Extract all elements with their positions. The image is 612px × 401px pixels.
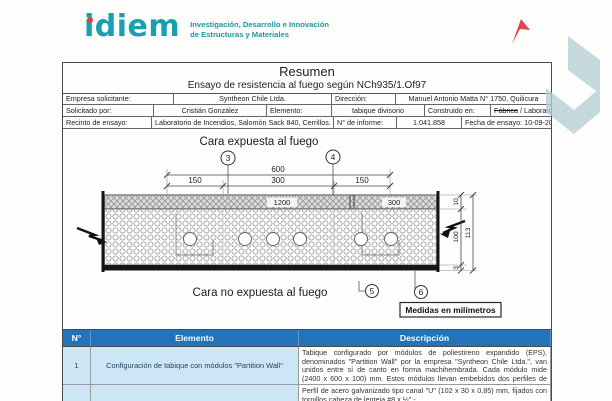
- value-elemento: tabique divisorio: [331, 105, 424, 116]
- idiem-logo: idiem Investigación, Desarrollo e Innova…: [84, 12, 329, 42]
- svg-text:4: 4: [331, 152, 336, 162]
- value-fecha-ensayo: Fecha de ensayo: 10-09-2015: [461, 117, 551, 128]
- callout-6: 6: [414, 271, 428, 299]
- watermark-arrow-icon: [540, 36, 604, 142]
- idiem-tagline-line1: Investigación, Desarrollo e Innovación: [190, 20, 329, 30]
- dim-3: 3: [453, 266, 460, 270]
- row2-element: Cierre perimetral (no mostrado): [91, 385, 299, 401]
- exposed-face-label: Cara expuesta al fuego: [200, 136, 319, 148]
- page-title: Resumen: [63, 64, 551, 79]
- units-note-text: Medidas en milímetros: [405, 305, 496, 315]
- panel-right-end-cap: [437, 191, 440, 272]
- row2-num: 2: [63, 385, 91, 401]
- label-construido-en: Construido en:: [424, 105, 490, 116]
- idiem-wordmark: idiem: [84, 12, 180, 42]
- idiem-tagline-line2: de Estructuras y Materiales: [190, 30, 329, 40]
- row2-description: Perfil de acero galvanizado tipo canal "…: [299, 385, 551, 401]
- label-num-informe: N° de informe:: [333, 117, 396, 128]
- info-row-3: Recinto de ensayo: Laboratorio de Incend…: [63, 117, 551, 129]
- label-elemento: Elemento:: [266, 105, 331, 116]
- svg-text:3: 3: [226, 153, 231, 163]
- info-row-2: Solicitado por: Cristián González Elemen…: [63, 105, 551, 117]
- svg-text:150: 150: [188, 176, 202, 185]
- info-table: Empresa solicitante: Syntheon Chile Ltda…: [63, 93, 551, 129]
- value-solicitado-por: Cristián González: [153, 105, 266, 116]
- eps-core-layer: [105, 209, 437, 265]
- svg-text:600: 600: [271, 165, 285, 174]
- title-block: Resumen Ensayo de resistencia al fuego s…: [63, 63, 551, 94]
- page-subtitle: Ensayo de resistencia al fuego según NCh…: [63, 80, 551, 91]
- top-mortar-layer: 1200 300: [105, 195, 437, 209]
- idiem-tagline: Investigación, Desarrollo e Innovación d…: [190, 20, 329, 39]
- bottom-coating-layer: [105, 265, 437, 271]
- row1-description: Tabique configurado por módulos de polie…: [299, 347, 551, 385]
- row1-element: Configuración de tabique con módulos "Pa…: [91, 347, 299, 385]
- unexposed-face-label: Cara no expuesta al fuego: [193, 287, 328, 299]
- value-recinto: Laboratorio de Incendios, Salomón Sack 8…: [151, 117, 333, 128]
- dim-113: 113: [465, 227, 472, 238]
- red-pointer-icon: [511, 17, 533, 47]
- label-recinto: Recinto de ensayo:: [63, 117, 151, 128]
- svg-text:300: 300: [271, 176, 285, 185]
- svg-text:6: 6: [419, 287, 424, 297]
- label-direccion: Dirección:: [331, 93, 395, 104]
- dim-100: 100: [453, 231, 460, 243]
- label-solicitado-por: Solicitado por:: [63, 105, 153, 116]
- scanned-report-page: idiem Investigación, Desarrollo e Innova…: [0, 0, 612, 401]
- logo-red-dot-accent: [87, 17, 93, 23]
- value-empresa: Syntheon Chile Ltda.: [173, 93, 331, 104]
- label-empresa: Empresa solicitante:: [63, 93, 173, 104]
- dim-10: 10: [453, 198, 460, 206]
- construido-fabrica-struck: Fábrica: [494, 106, 518, 115]
- panel-width-label: 1200: [274, 198, 291, 207]
- col-header-num: N°: [63, 330, 91, 347]
- units-note-box: Medidas en milímetros: [400, 303, 501, 318]
- row1-num: 1: [63, 347, 91, 385]
- col-header-element: Elemento: [91, 330, 299, 347]
- elements-table: N° Elemento Descripción 1 Configuración …: [63, 329, 551, 401]
- report-frame: Resumen Ensayo de resistencia al fuego s…: [62, 62, 552, 401]
- svg-text:150: 150: [355, 176, 369, 185]
- dimension-150-300-150: 150 300 150: [164, 176, 393, 189]
- value-num-informe: 1.041.858: [396, 117, 461, 128]
- info-row-1: Empresa solicitante: Syntheon Chile Ltda…: [63, 93, 551, 105]
- callout-5: 5: [359, 281, 379, 298]
- col-header-description: Descripción: [299, 330, 551, 347]
- value-direccion: Manuel Antonio Matta N° 1750, Quilicura: [395, 93, 551, 104]
- idiem-wordmark-text: idiem: [84, 9, 180, 44]
- wall-cross-section-diagram: Cara expuesta al fuego 3 4: [63, 129, 550, 326]
- panel-right-label: 300: [388, 198, 401, 207]
- svg-text:5: 5: [370, 286, 375, 296]
